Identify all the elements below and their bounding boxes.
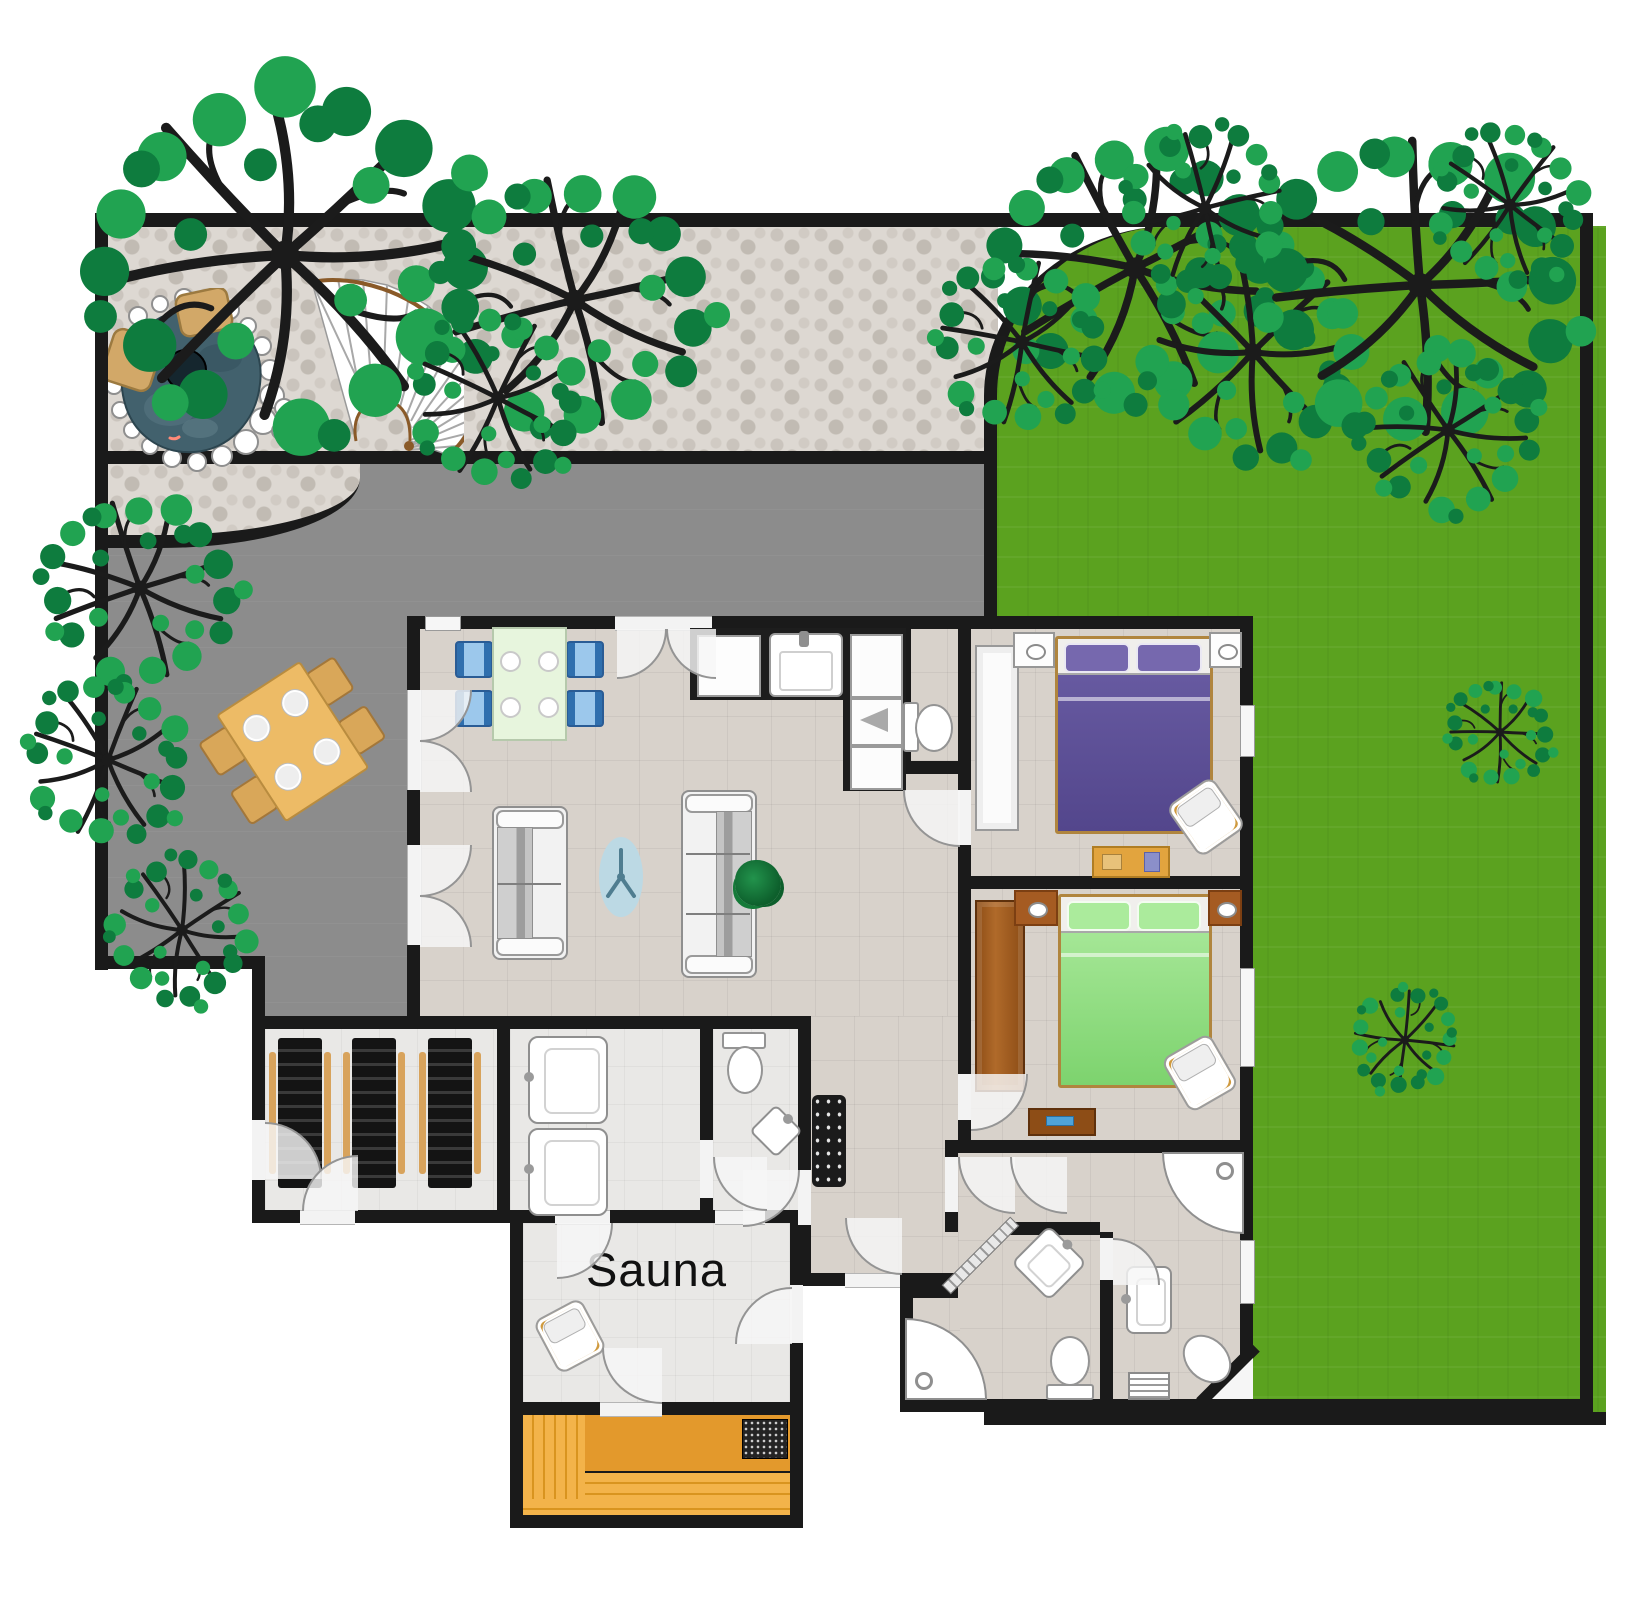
sofa-cushion-line <box>686 913 750 915</box>
nightstand-brown <box>1208 890 1242 926</box>
sofa-armrest <box>685 955 753 974</box>
pond-center <box>166 350 206 390</box>
sink-basin <box>544 1140 600 1206</box>
nightstand <box>1209 632 1242 668</box>
wardrobe-brown <box>975 900 1025 1092</box>
house-wall <box>252 1016 419 1029</box>
pond <box>100 288 300 480</box>
house-wall <box>407 616 420 1029</box>
nightstand-brown <box>1014 890 1058 926</box>
kitchen-appliance <box>850 746 903 790</box>
desk-item <box>1046 1116 1074 1126</box>
hood-funnel-icon <box>860 708 888 732</box>
sofa-cushion-line <box>497 883 561 885</box>
toilet-bowl <box>1050 1336 1090 1386</box>
site-border-right <box>1580 213 1593 1412</box>
bed-pillow <box>1067 901 1131 931</box>
lounger-rail <box>324 1052 331 1174</box>
door-opening <box>945 1157 958 1212</box>
house-wall <box>497 1016 510 1223</box>
kitchen-appliance <box>850 634 903 698</box>
sauna-heater <box>742 1419 788 1459</box>
toilet-tank <box>1046 1384 1094 1400</box>
dining-chair <box>566 641 604 678</box>
sofa-armrest <box>496 937 564 956</box>
hall-heater <box>812 1095 846 1187</box>
toilet-bowl <box>915 704 953 752</box>
sink-basin <box>779 651 833 691</box>
bed-pillow <box>1064 643 1130 673</box>
potted-plant <box>735 860 781 906</box>
house-wall <box>510 1210 523 1415</box>
window <box>1240 968 1255 1067</box>
lounger-rail <box>419 1052 426 1174</box>
house-wall <box>958 888 971 1074</box>
house-wall <box>958 628 971 790</box>
lounger-rail <box>474 1052 481 1174</box>
site-border-bottom-left <box>95 956 265 969</box>
shower-head-icon <box>1216 1162 1234 1180</box>
patio-area-lower <box>265 956 419 1016</box>
house-wall <box>900 1399 1593 1412</box>
door-opening <box>252 1120 265 1180</box>
nightstand-decor <box>1028 902 1048 918</box>
sauna-bench <box>523 1499 790 1515</box>
nightstand-decor <box>1217 902 1237 918</box>
stair-rail-inner <box>355 401 410 441</box>
window <box>425 616 461 631</box>
stairs <box>312 256 464 468</box>
washroom-sink <box>528 1128 608 1216</box>
small-desk <box>1028 1108 1096 1136</box>
house-wall <box>252 1210 510 1223</box>
wardrobe <box>975 645 1019 831</box>
plate <box>500 697 521 718</box>
plate <box>500 651 521 672</box>
floor-plan: Sauna <box>0 0 1643 1600</box>
armchair-cushion <box>542 1306 588 1345</box>
window <box>1240 1240 1255 1304</box>
faucet-icon <box>799 631 809 647</box>
toilet-bowl <box>727 1046 763 1094</box>
sink-basin <box>544 1048 600 1114</box>
door-opening <box>845 1273 900 1288</box>
sauna-lounger <box>428 1038 472 1188</box>
dining-chair <box>566 690 604 727</box>
door-opening <box>1100 1238 1113 1280</box>
house-wall <box>510 1402 523 1528</box>
door-opening <box>600 1402 662 1417</box>
bed-pillow <box>1136 643 1202 673</box>
plate <box>277 685 313 721</box>
plate <box>309 734 345 770</box>
plate <box>538 697 559 718</box>
house-wall <box>510 1515 803 1528</box>
radiator <box>1128 1372 1170 1400</box>
lounger-rail <box>398 1052 405 1174</box>
site-border-left <box>95 213 108 970</box>
desk-book <box>1144 852 1160 872</box>
sofa-cushion-line <box>686 853 750 855</box>
dining-chair <box>455 641 493 678</box>
bed-fold-line <box>1058 697 1210 701</box>
ceiling-fan-icon <box>598 836 644 918</box>
desk-book <box>1102 854 1122 870</box>
sink-basin <box>1136 1278 1166 1326</box>
sauna-bench <box>585 1473 790 1501</box>
door-opening <box>958 1074 971 1120</box>
desk <box>1092 846 1170 878</box>
window <box>1240 705 1255 757</box>
kitchen-hood <box>850 698 903 746</box>
dining-table <box>492 627 567 741</box>
plate <box>239 710 275 746</box>
nightstand-decor <box>1218 644 1238 660</box>
door-opening <box>700 1140 713 1198</box>
sofa <box>492 806 568 960</box>
nightstand-decor <box>1026 644 1046 660</box>
stair-rail-knob <box>404 441 414 451</box>
bed-pillow <box>1137 901 1201 931</box>
house-wall <box>958 1120 971 1140</box>
door-opening <box>798 1170 811 1225</box>
faucet-icon <box>1121 1294 1131 1304</box>
house-wall <box>407 1016 811 1029</box>
site-border-top <box>95 213 1593 227</box>
shower-head-icon <box>915 1372 933 1390</box>
washroom-sink <box>528 1036 608 1124</box>
faucet-icon <box>524 1164 534 1174</box>
bed-fold-line <box>1061 953 1209 957</box>
nightstand <box>1013 632 1055 668</box>
plate <box>538 651 559 672</box>
faucet-icon <box>524 1072 534 1082</box>
door-opening <box>300 1210 355 1225</box>
house-wall <box>790 1402 803 1528</box>
kitchen-sink <box>769 633 843 697</box>
plate <box>270 759 306 795</box>
sauna-lounger <box>352 1038 396 1188</box>
